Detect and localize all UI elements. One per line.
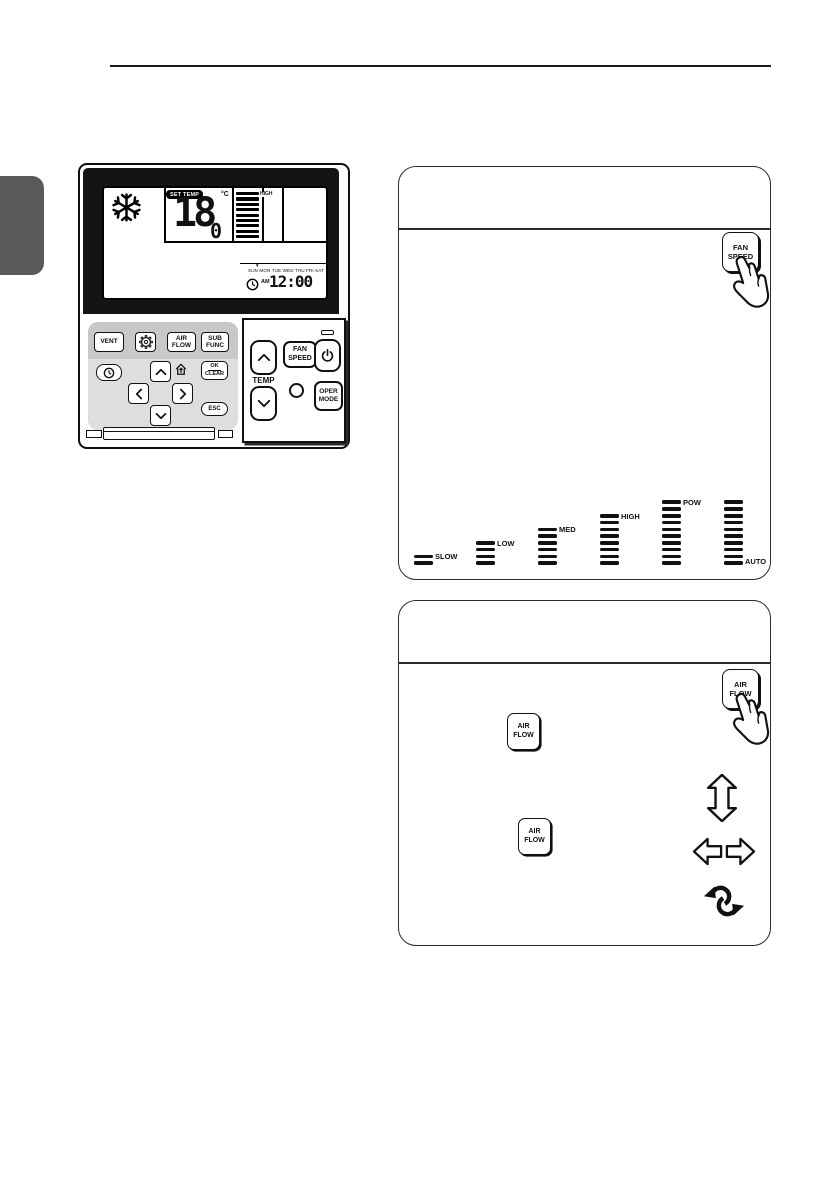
ok-clear-button: OK CLEAR [201, 361, 228, 380]
manual-page: SET TEMP 18 0 °C HIGH ▼ SUN MON TUE WED … [0, 0, 840, 1192]
fan-bar [662, 521, 681, 525]
ok-label: OK [208, 363, 220, 371]
lcd-divider [240, 263, 326, 264]
fan-bar [600, 534, 619, 538]
fan-bar [662, 500, 681, 504]
snowflake-icon [111, 192, 142, 223]
clock-icon [103, 367, 115, 379]
swirl-swing-icon [701, 877, 747, 925]
home-icon [175, 363, 187, 376]
fan-level-indicator-row: SLOWLOWMEDHIGHPOWAUTO [414, 493, 764, 565]
lcd-fan-bar [236, 219, 259, 222]
section-tab [0, 176, 44, 275]
sub-func-button: SUB FUNC [201, 332, 229, 352]
fan-bar [724, 555, 743, 559]
fan-bar [538, 548, 557, 552]
header-rule [110, 65, 771, 67]
fan-level-pow: POW [662, 497, 681, 565]
temp-up-button [250, 340, 277, 375]
fan-level-bars [414, 551, 433, 565]
fan-bar [724, 548, 743, 552]
fan-level-label: AUTO [745, 558, 766, 566]
fan-level-auto: AUTO [724, 497, 743, 565]
fan-level-bars [600, 511, 619, 565]
pressing-hand-icon [729, 253, 775, 313]
air-flow-section: AIR FLOW AIR FLOW AIR FLOW [398, 600, 771, 946]
fan-bar [600, 561, 619, 565]
fan-bar [724, 521, 743, 525]
lcd-time: 12:00 [269, 274, 312, 290]
air-flow-step-button-2: AIR FLOW [518, 818, 551, 855]
fan-bar [662, 534, 681, 538]
fan-level-label: POW [683, 499, 701, 507]
lcd-fan-bar [236, 230, 259, 233]
remote-lcd: SET TEMP 18 0 °C HIGH ▼ SUN MON TUE WED … [102, 186, 328, 300]
chevron-up-icon [155, 368, 167, 376]
fan-bar [600, 514, 619, 518]
gear-icon [139, 335, 153, 349]
lcd-fan-bar [236, 214, 259, 217]
lcd-divider [232, 188, 234, 241]
timer-button [96, 364, 122, 381]
air-flow-button: AIR FLOW [167, 332, 196, 352]
fan-level-label: SLOW [435, 553, 458, 561]
fan-bar [600, 548, 619, 552]
fan-level-label: LOW [497, 540, 515, 548]
status-led [289, 383, 304, 398]
power-icon [320, 348, 335, 363]
section-title [413, 181, 756, 215]
air-flow-step-button-1: AIR FLOW [507, 713, 540, 750]
fan-bar [662, 514, 681, 518]
fan-level-label: MED [559, 526, 576, 534]
fan-bar [724, 561, 743, 565]
fan-level-bars [662, 497, 681, 565]
lcd-temperature: 18 [173, 194, 213, 232]
esc-button: ESC [201, 402, 228, 416]
fan-bar [662, 555, 681, 559]
fan-bar [662, 561, 681, 565]
fan-bar [662, 507, 681, 511]
cover-slot-line [104, 431, 214, 432]
section-title-divider [399, 228, 770, 230]
fan-level-low: LOW [476, 538, 495, 565]
fan-bar [600, 541, 619, 545]
pressing-hand-icon [729, 690, 775, 750]
vent-button: VENT [94, 332, 124, 352]
fan-level-high: HIGH [600, 511, 619, 565]
horizontal-swing-icon [693, 837, 755, 866]
fan-bar [600, 528, 619, 532]
nav-right-button [172, 383, 193, 404]
lcd-divider [282, 188, 284, 241]
lcd-fan-bar [236, 235, 259, 238]
fan-bar [538, 541, 557, 545]
fan-bar [538, 555, 557, 559]
fan-bar [538, 534, 557, 538]
fan-bar [724, 528, 743, 532]
fan-bar [662, 541, 681, 545]
fan-bar [414, 555, 433, 559]
nav-left-button [128, 383, 149, 404]
fan-bar [600, 521, 619, 525]
temp-down-button [250, 386, 277, 421]
fan-bar [476, 541, 495, 545]
fan-bar [538, 528, 557, 532]
lcd-fan-bar [236, 224, 259, 227]
fan-speed-section: FAN SPEED SLOWLOWMEDHIGHPOWAUTO [398, 166, 771, 580]
lcd-fan-bar [236, 192, 259, 195]
lcd-fan-level-label: HIGH [260, 192, 273, 197]
oper-mode-button: OPER MODE [314, 381, 343, 411]
fan-speed-button: FAN SPEED [283, 341, 317, 368]
fan-level-bars [538, 524, 557, 565]
clear-label: CLEAR [205, 371, 224, 378]
nav-up-button [150, 361, 171, 382]
fan-bar [476, 548, 495, 552]
section-title-divider [399, 662, 770, 664]
fan-bar [724, 514, 743, 518]
chevron-left-icon [135, 388, 143, 400]
settings-button [135, 332, 156, 352]
fan-bar [724, 534, 743, 538]
remote-controller-illustration: SET TEMP 18 0 °C HIGH ▼ SUN MON TUE WED … [78, 163, 350, 449]
fan-bar [600, 555, 619, 559]
fan-bar [724, 541, 743, 545]
fan-level-bars [476, 538, 495, 565]
fan-bar [476, 561, 495, 565]
section-title [413, 615, 756, 649]
power-led [321, 330, 334, 335]
fan-level-slow: SLOW [414, 551, 433, 565]
lcd-temp-unit: °C [221, 191, 229, 198]
fan-bar [724, 500, 743, 504]
chevron-right-icon [179, 388, 187, 400]
chevron-up-icon [257, 353, 271, 362]
fan-bar [662, 548, 681, 552]
vertical-swing-icon [705, 774, 739, 822]
power-button [314, 339, 341, 372]
cover-notch-right [218, 430, 233, 438]
clock-icon [246, 278, 259, 291]
chevron-down-icon [257, 399, 271, 408]
lcd-fan-bar [236, 203, 259, 206]
fan-level-label: HIGH [621, 513, 640, 521]
lcd-temperature-decimal: 0 [210, 221, 222, 241]
cover-notch-left [86, 430, 102, 438]
fan-level-bars [724, 497, 743, 565]
lcd-fan-speed-bars [236, 192, 259, 240]
fan-bar [414, 561, 433, 565]
cover-slot [103, 427, 215, 440]
fan-bar [538, 561, 557, 565]
lcd-fan-bar [236, 208, 259, 211]
lcd-fan-bar [236, 197, 259, 200]
fan-bar [724, 507, 743, 511]
chevron-down-icon [155, 412, 167, 420]
lcd-divider [164, 241, 326, 243]
fan-bar [476, 555, 495, 559]
nav-down-button [150, 405, 171, 426]
fan-bar [662, 528, 681, 532]
fan-level-med: MED [538, 524, 557, 565]
temp-label: TEMP [246, 376, 281, 385]
